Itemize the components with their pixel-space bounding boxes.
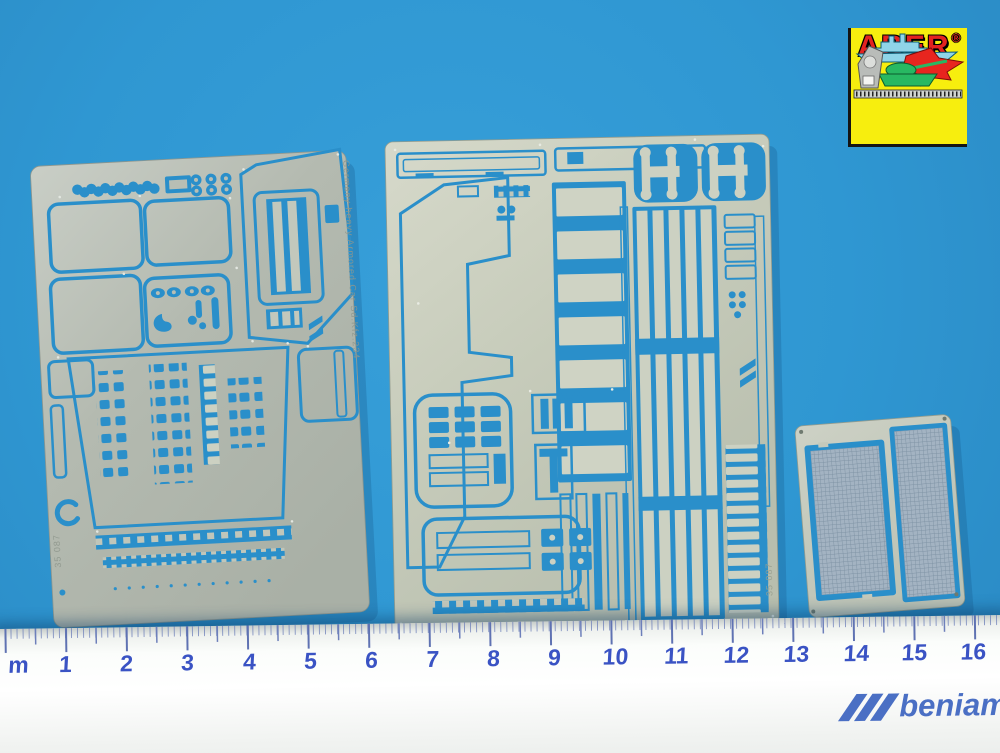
ruler-number: 16 [960, 638, 987, 665]
ruler-number: 10 [602, 643, 629, 670]
ruler-number: 9 [547, 644, 561, 671]
ruler-unit-label: m [8, 652, 30, 679]
ruler-number: 3 [180, 649, 194, 676]
ruler-number: 13 [783, 641, 810, 668]
caliper-icon [858, 46, 883, 88]
left-fret-etched-code: 35 087 [51, 534, 63, 568]
product-photo-scene: Germany heavy Armored Car Sd.Kfz.234 35 … [0, 0, 1000, 753]
left-photo-etch-fret: Germany heavy Armored Car Sd.Kfz.234 35 … [30, 149, 378, 638]
ruler-number: 12 [723, 642, 750, 669]
ruler-number: 11 [664, 642, 690, 669]
measuring-ruler: m 1 2 3 4 5 6 7 8 9 10 11 12 13 14 15 16… [0, 615, 1000, 753]
ruler-number: 6 [364, 647, 378, 674]
beniamin-wordmark: beniamin [899, 687, 1000, 725]
ruler-number: 14 [843, 640, 870, 667]
right-photo-etch-fret [795, 414, 975, 630]
mesh-grille-panel [811, 446, 890, 595]
beniamin-logo: beniamin [847, 687, 1000, 726]
middle-fret-etched-code: 35 087 [764, 562, 775, 596]
middle-photo-etch-fret: 35 087 [385, 134, 787, 644]
ruler-number: 15 [901, 639, 928, 666]
ruler-icon [854, 90, 962, 98]
ruler-number: 2 [119, 650, 133, 677]
ruler-number: 4 [242, 648, 256, 675]
aber-logo-card: ABER® [848, 28, 967, 147]
ruler-number: 7 [425, 646, 439, 673]
ruler-number: 8 [486, 645, 500, 672]
ruler-number: 1 [58, 651, 72, 678]
ruler-number: 5 [303, 648, 317, 675]
aber-logo-graphic [851, 28, 966, 100]
